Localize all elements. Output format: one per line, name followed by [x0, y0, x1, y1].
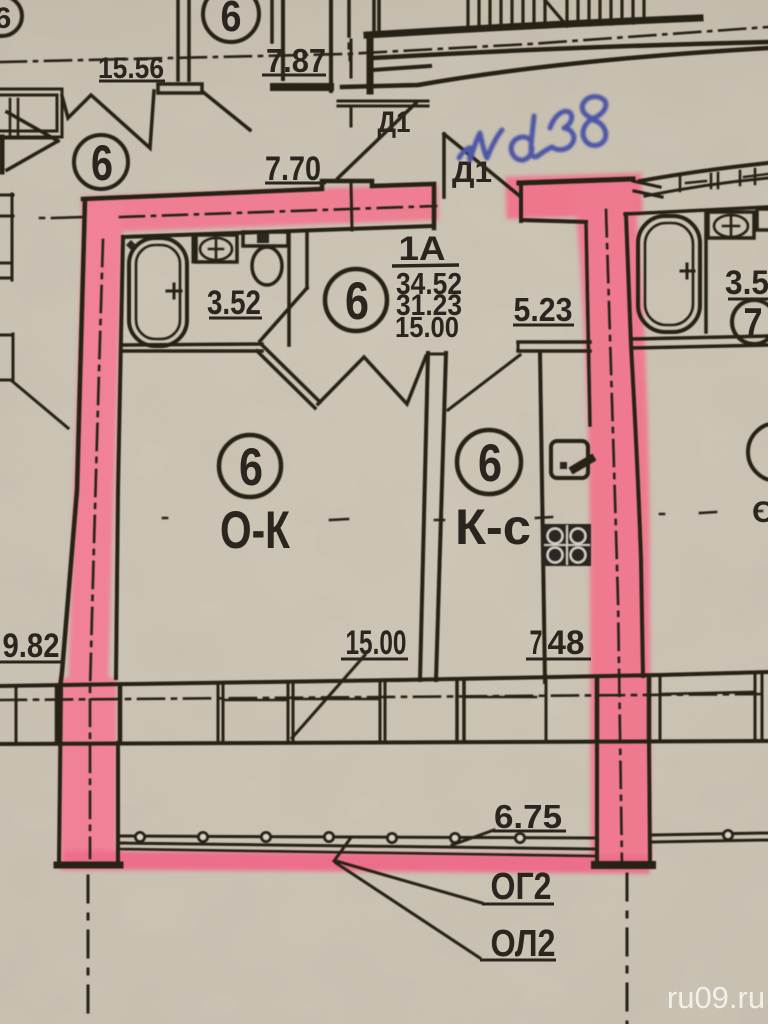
svg-text:С: С: [752, 496, 768, 529]
svg-text:ru09.ru: ru09.ru: [667, 980, 765, 1015]
svg-text:ОГ2: ОГ2: [491, 866, 552, 908]
svg-text:6: 6: [221, 0, 242, 41]
svg-text:6: 6: [91, 135, 113, 191]
svg-text:К-с: К-с: [455, 499, 531, 555]
svg-text:15.00: 15.00: [346, 624, 407, 662]
svg-text:9.82: 9.82: [3, 627, 60, 665]
svg-text:6: 6: [239, 438, 263, 497]
svg-text:5.23: 5.23: [514, 291, 573, 328]
svg-text:7: 7: [530, 624, 543, 662]
svg-text:6: 6: [345, 272, 369, 331]
svg-text:1А: 1А: [399, 230, 446, 268]
svg-text:7.87: 7.87: [266, 42, 326, 79]
svg-text:3.52: 3.52: [207, 284, 261, 322]
svg-text:48: 48: [548, 624, 585, 662]
svg-text:О-К: О-К: [220, 501, 290, 560]
svg-text:6: 6: [0, 2, 11, 35]
svg-text:15.00: 15.00: [395, 312, 459, 344]
svg-text:6: 6: [478, 434, 502, 493]
svg-text:7: 7: [744, 299, 763, 346]
svg-text:3.5: 3.5: [725, 264, 768, 302]
svg-text:Д1: Д1: [378, 106, 411, 139]
svg-text:6.75: 6.75: [494, 798, 562, 835]
